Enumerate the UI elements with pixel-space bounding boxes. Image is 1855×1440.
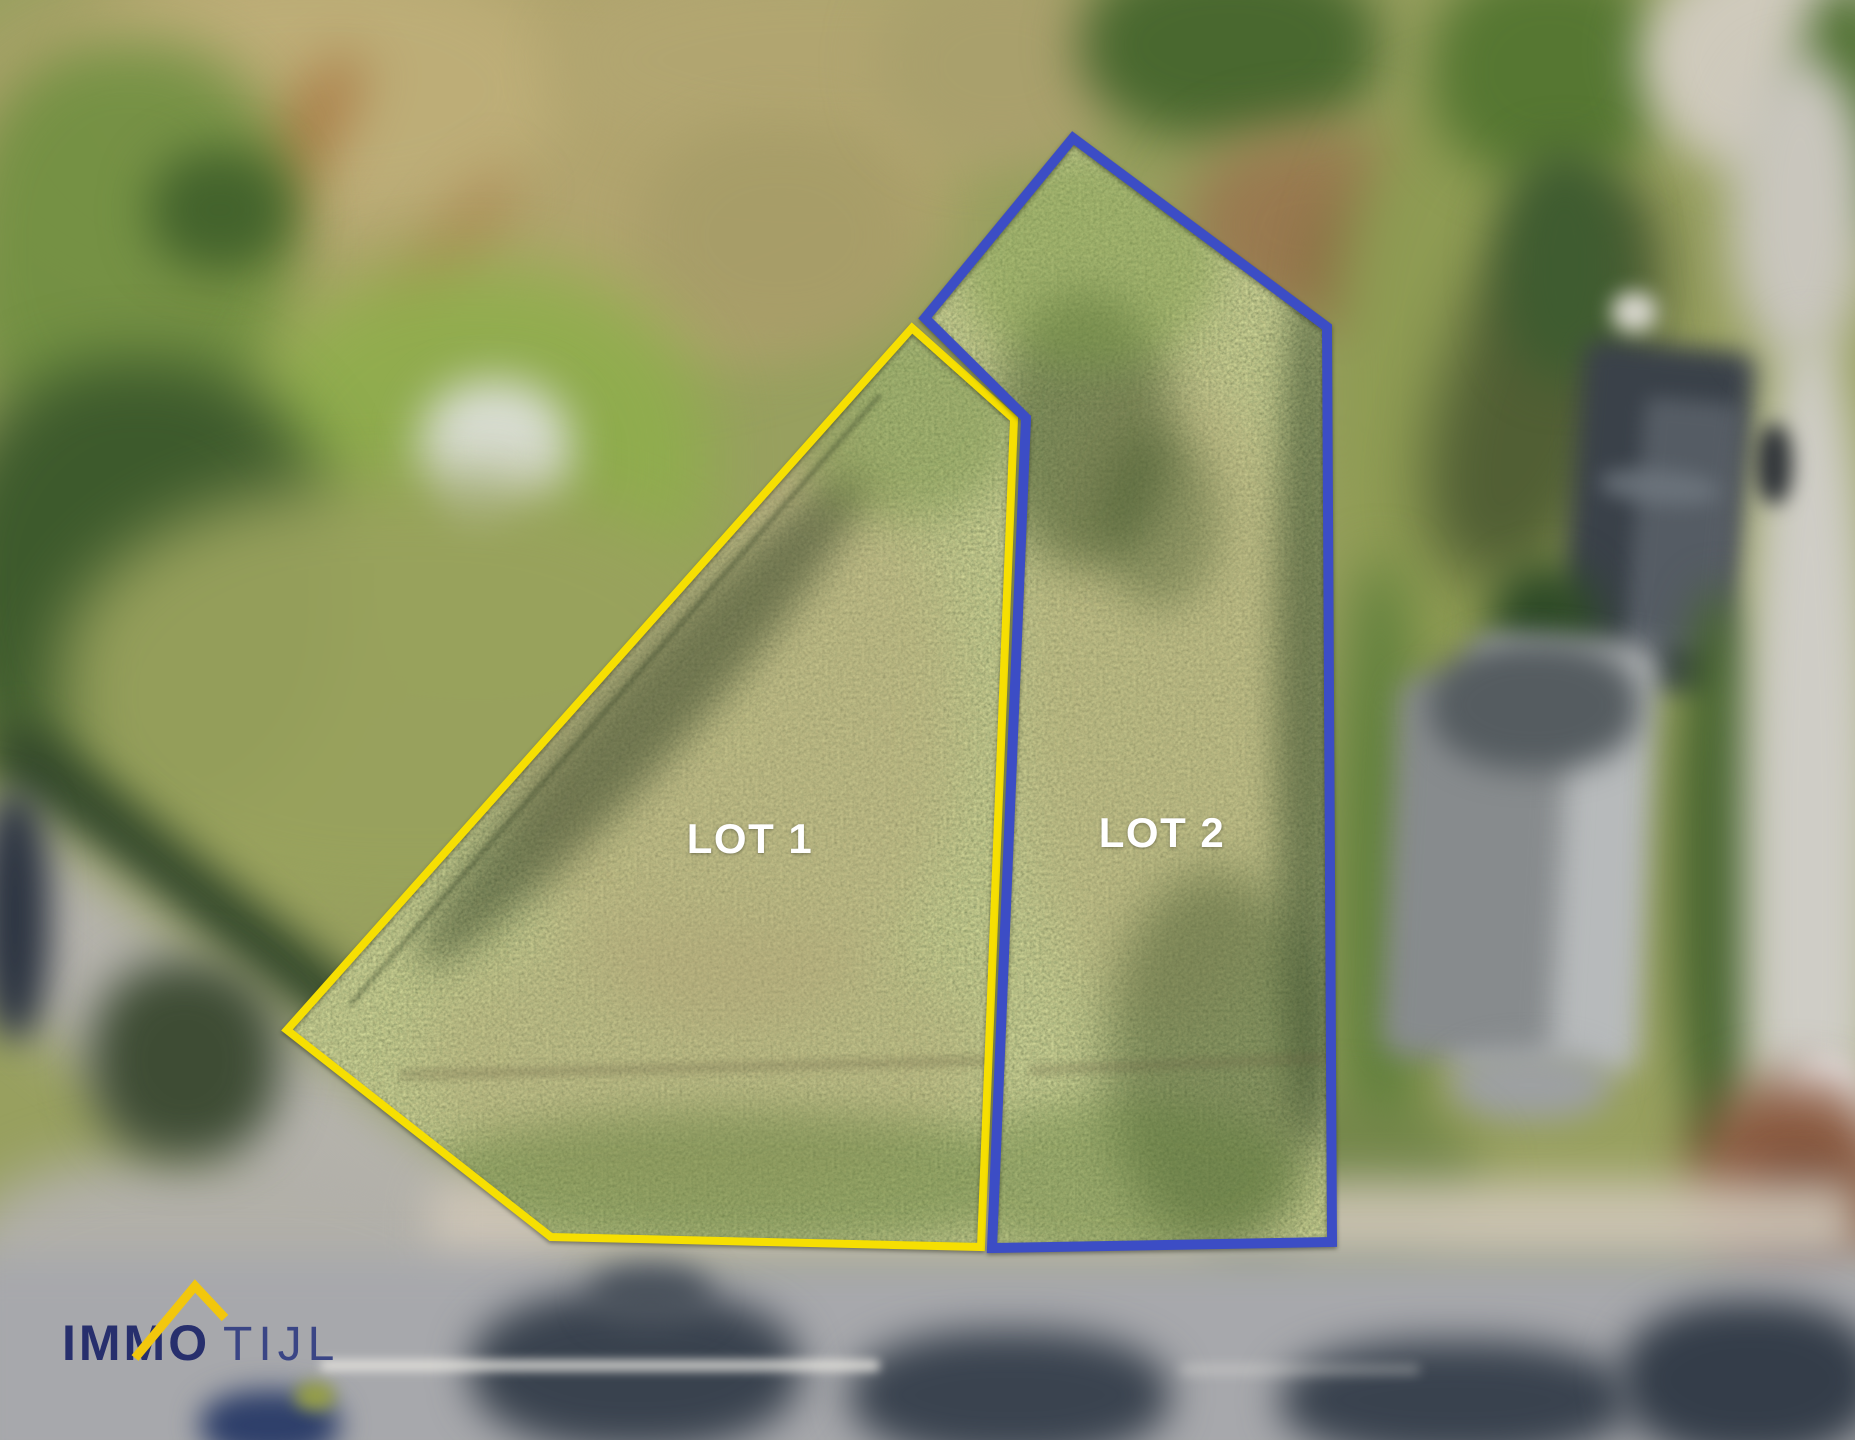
lot-overlay	[0, 0, 1855, 1440]
house-roof-icon	[130, 1280, 250, 1364]
lot2-label: LOT 2	[1099, 809, 1226, 857]
aerial-photo: LOT 1 LOT 2 IMMO TIJL	[0, 0, 1855, 1440]
lot1-label: LOT 1	[687, 815, 814, 863]
immotijl-logo: IMMO TIJL	[60, 1280, 360, 1376]
lot1-ground	[250, 290, 1070, 1290]
